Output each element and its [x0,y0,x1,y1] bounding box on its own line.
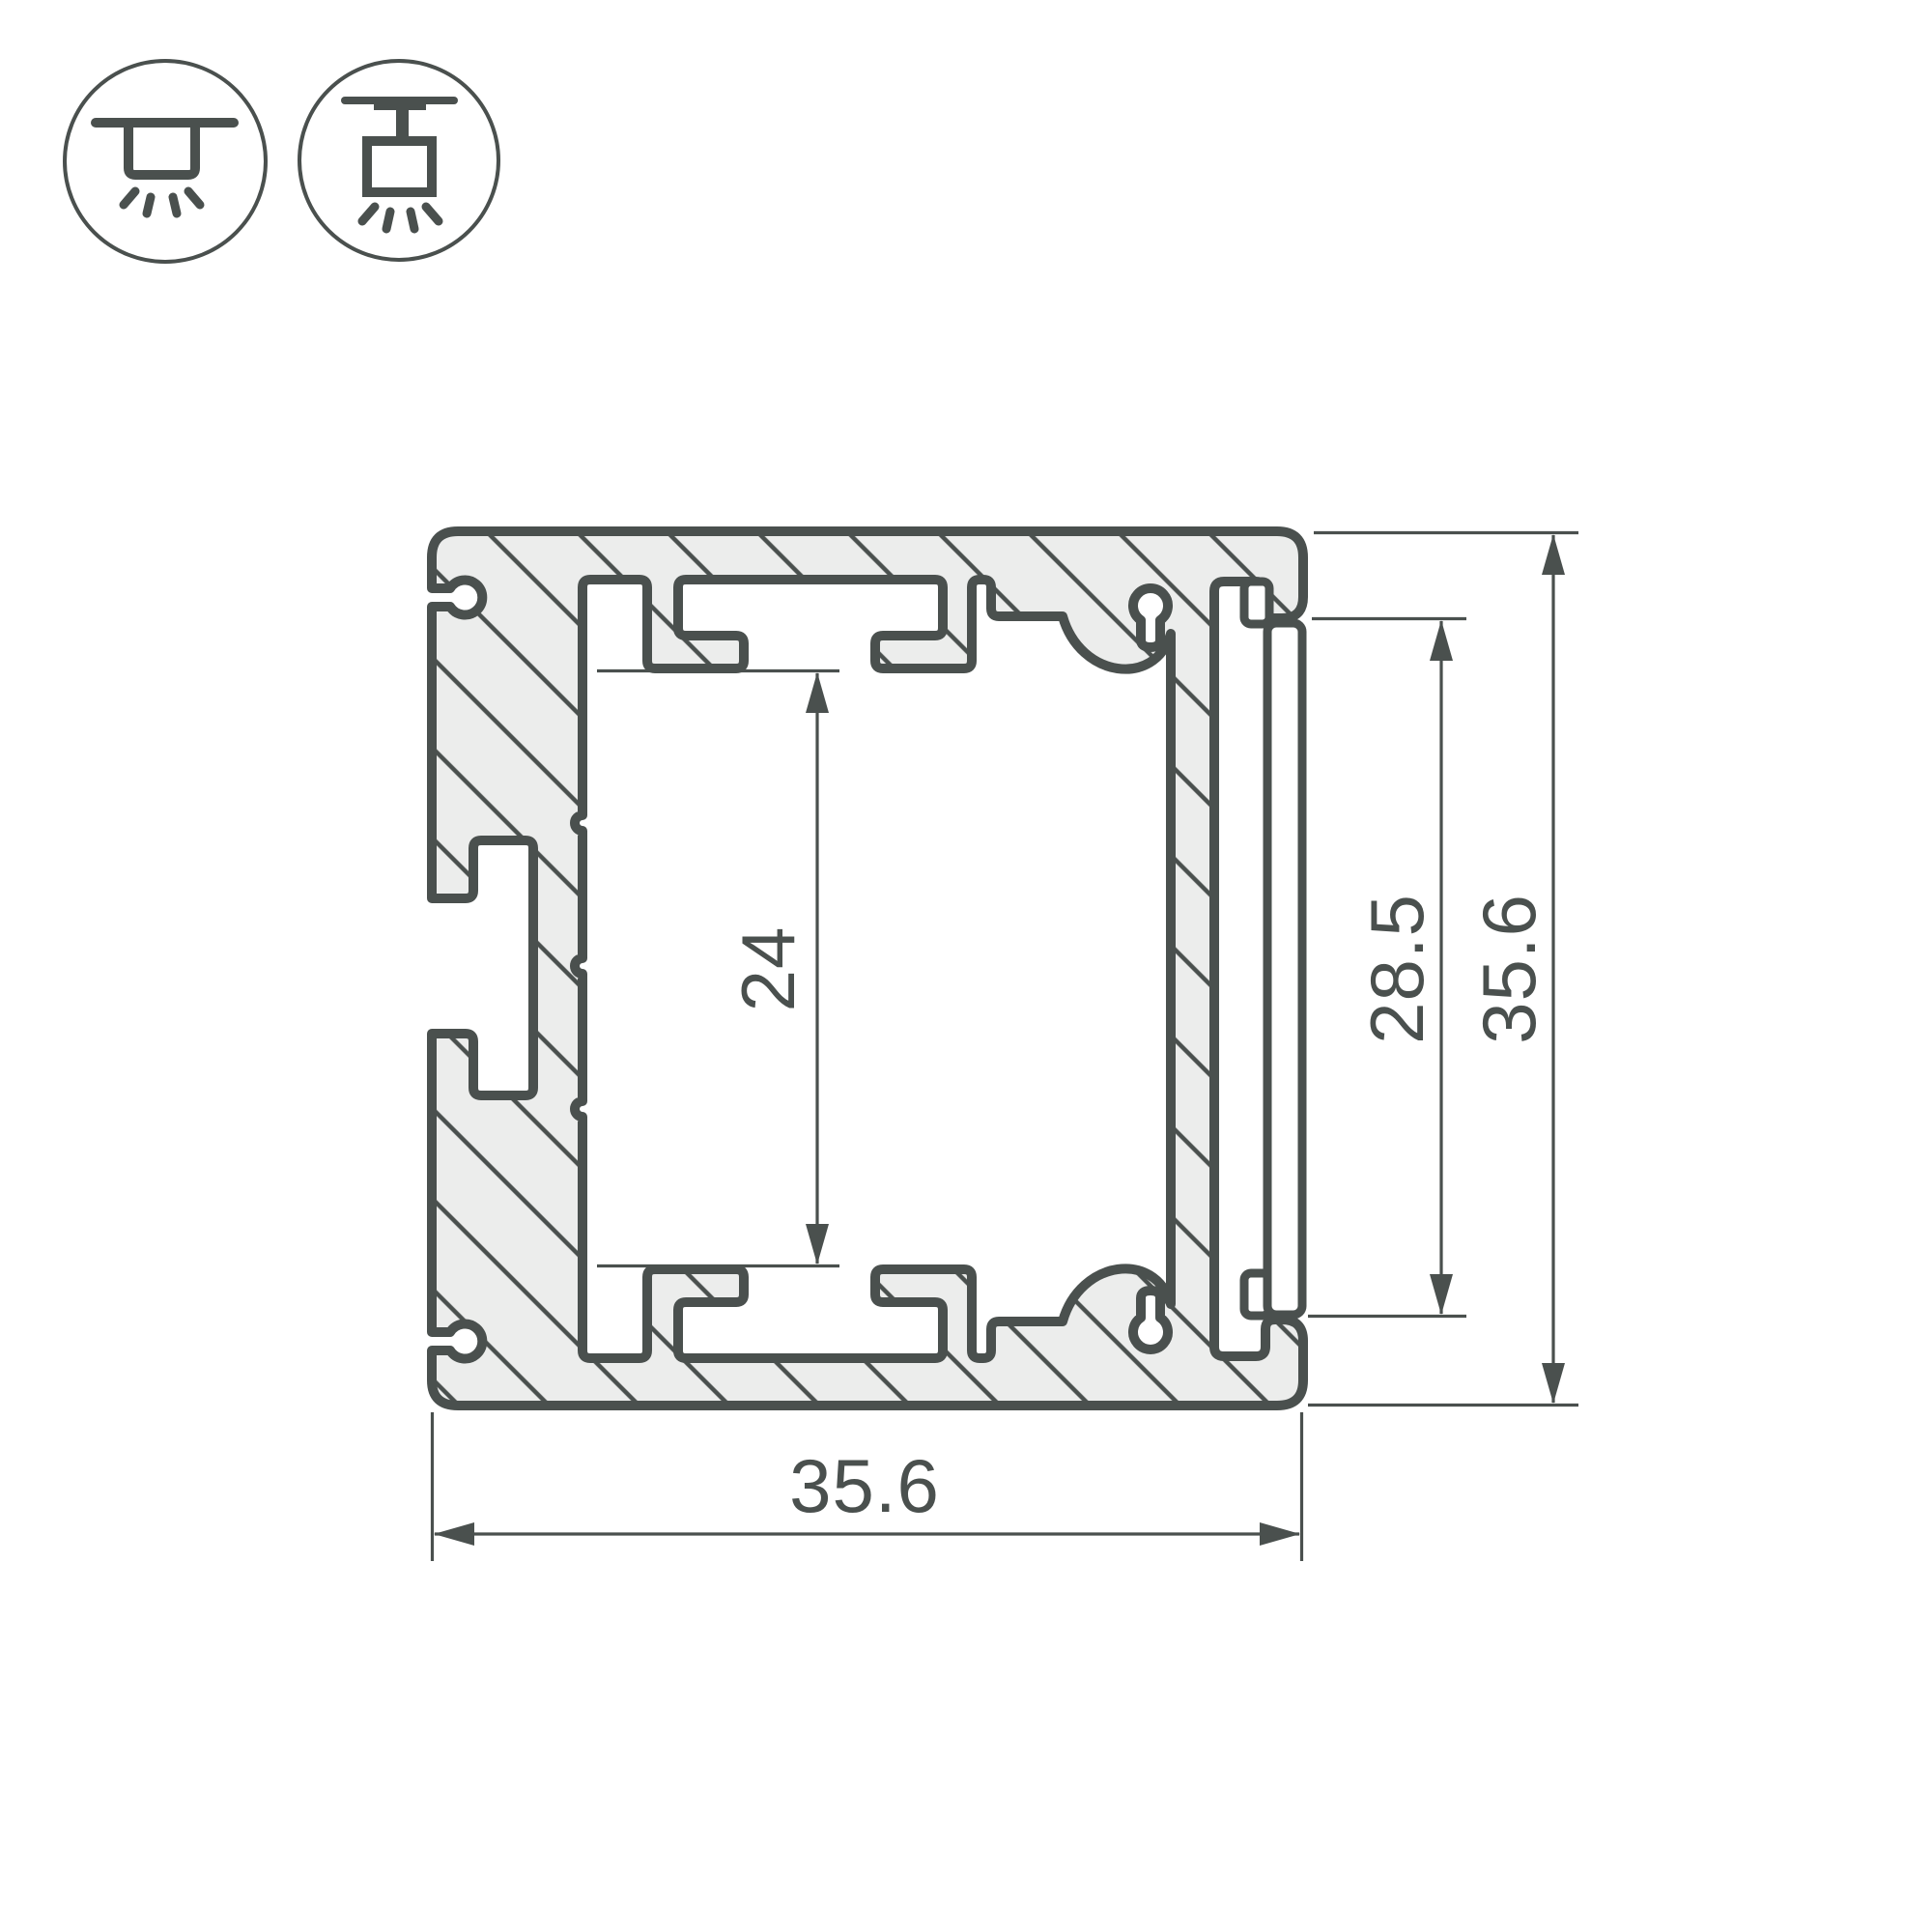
profile-cross-section [432,531,1303,1406]
arrowhead-up [806,672,829,713]
arrowhead-up [1542,534,1565,575]
arrowhead-down [1430,1274,1453,1315]
icon-circle [65,61,266,262]
arrowhead-left [434,1522,474,1546]
label-overall-width: 35.6 [789,1443,940,1528]
lamp-body [367,141,432,192]
arrowhead-down [1542,1363,1565,1404]
lamp-body [128,123,195,175]
icon-circle [299,61,498,260]
label-inner-height: 24 [725,926,810,1012]
light-rays [124,191,200,213]
arrowhead-up [1430,620,1453,661]
pendant-mount-icon [299,61,498,260]
cover-bar [1267,623,1302,1315]
arrowhead-right [1260,1522,1300,1546]
cover-plate [1244,582,1302,1316]
pendant-stem [396,100,409,141]
label-opening-height: 28.5 [1354,894,1439,1044]
drawing-page: 24 28.5 35.6 35.6 [0,0,1932,1932]
label-overall-height: 35.6 [1466,894,1551,1044]
dimension-labels: 24 28.5 35.6 35.6 [725,894,1551,1528]
cover-top-hook [1244,582,1269,624]
arrowhead-down [806,1224,829,1264]
mounting-icons [65,61,498,262]
aluminum-body [432,531,1303,1406]
surface-mount-icon [65,61,266,262]
light-rays [362,207,439,229]
technical-drawing: 24 28.5 35.6 35.6 [0,0,1932,1932]
